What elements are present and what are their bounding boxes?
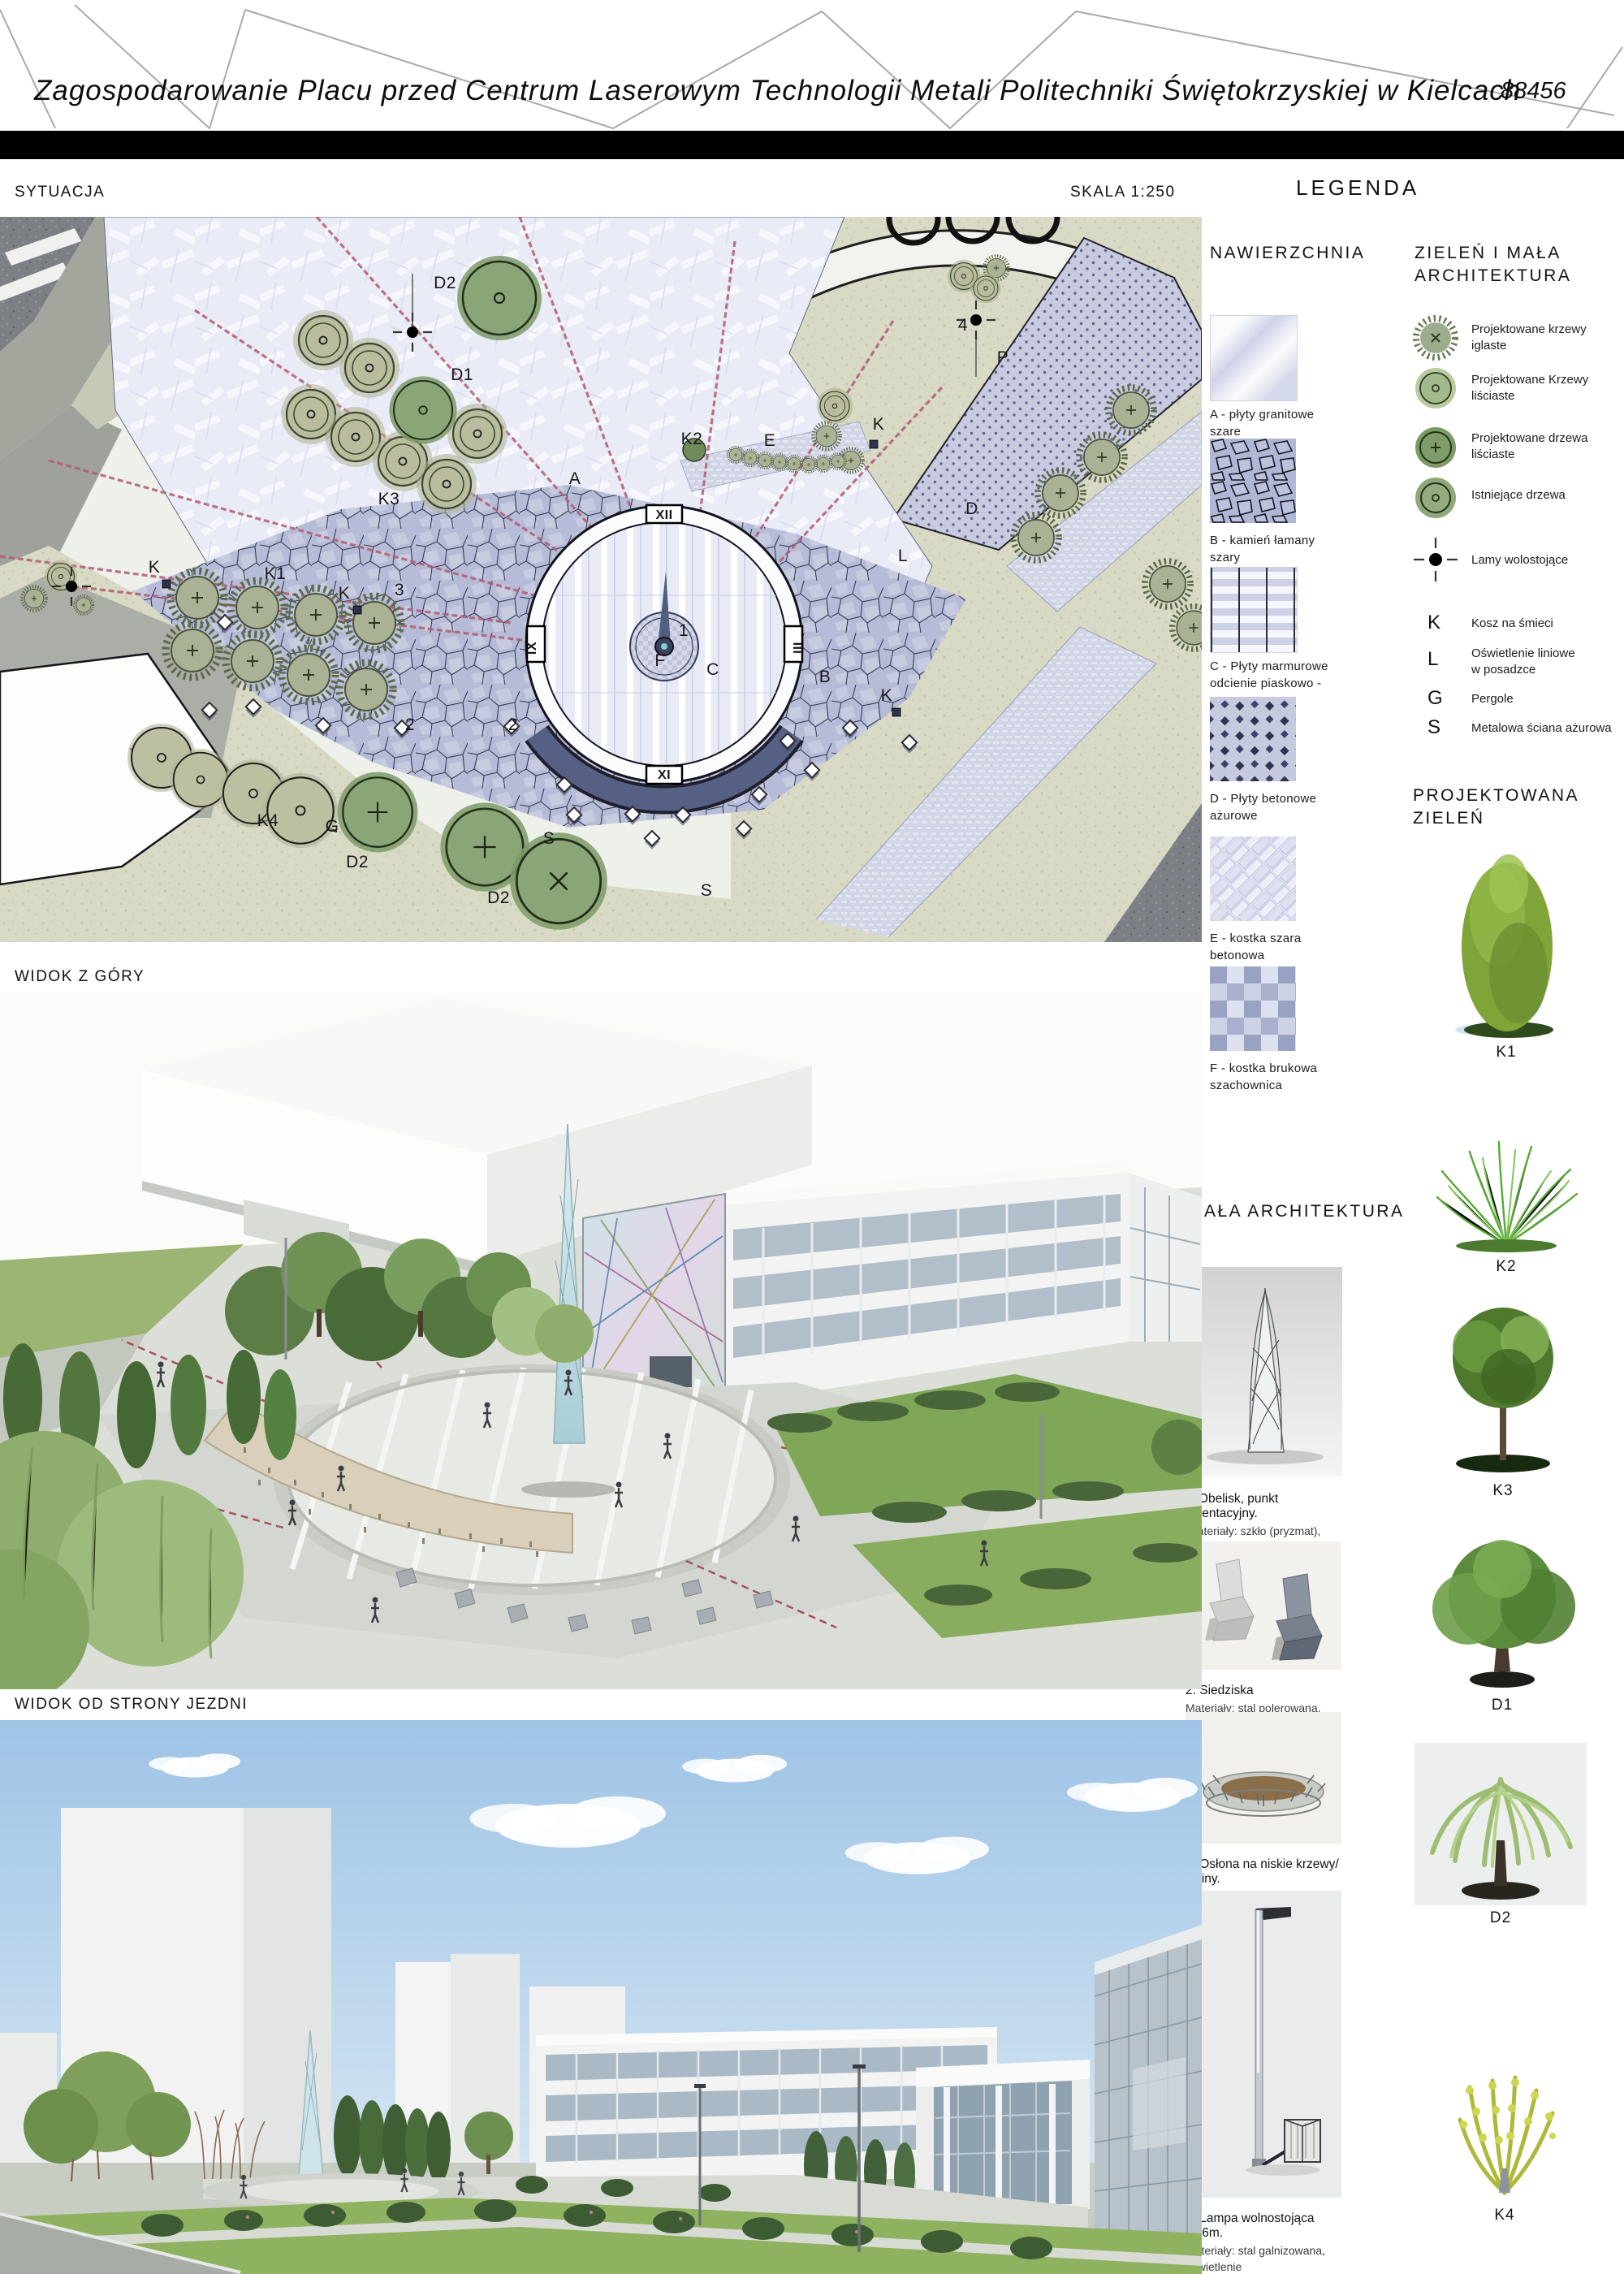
symbol-label: Lamy wolostojące — [1471, 552, 1568, 568]
plan-label-D2: D2 — [434, 274, 456, 292]
plant-photo-K4: K4 — [1437, 2063, 1572, 2224]
plant-code: K4 — [1437, 2207, 1572, 2224]
plan-label-G: G — [326, 817, 339, 836]
plan-label-K2: K2 — [681, 430, 703, 448]
mala-architektura-heading: MAŁA ARCHITEKTURA — [1188, 1200, 1405, 1223]
legend-letter-L: L — [1427, 648, 1438, 671]
legend-letter-G-label: Pergole — [1471, 691, 1514, 707]
view-top-label: WIDOK Z GÓRY — [15, 968, 145, 986]
section-label-sytuacja: SYTUACJA — [15, 184, 105, 201]
symbol-label: Istniejące drzewa — [1471, 487, 1566, 504]
plant-photo-K2: K2 — [1431, 1122, 1582, 1276]
plan-label-K1: K1 — [265, 564, 287, 583]
plant-code: D2 — [1415, 1909, 1587, 1927]
swatch-A: A - płyty granitowe szare — [1210, 315, 1314, 440]
swatch-E: E - kostka szara betonowa — [1210, 837, 1301, 964]
plan-label-B: B — [819, 668, 831, 686]
furniture-item-lamp: 4. Lampa wolnostojąca H=6m. Materiały: s… — [1186, 1891, 1341, 2274]
furniture-item-obelisk: 1.Obelisk, punkt orientacyjny. Materiały… — [1188, 1267, 1342, 1572]
plant-photo-D2: D2 — [1415, 1743, 1587, 1927]
plan-label-K: K — [339, 584, 351, 603]
legend-letter-S-label: Metalowa ściana ażurowa — [1471, 720, 1612, 737]
plan-label-D: D — [965, 499, 978, 518]
swatch-F-caption: F - kostka brukowa szachownica — [1210, 1060, 1317, 1094]
render-street-view — [0, 1720, 1202, 2274]
plan-label-S: S — [701, 881, 713, 900]
swatch-B-caption: B - kamień łamany szary — [1210, 532, 1315, 566]
swatch-E-caption: E - kostka szara betonowa — [1210, 930, 1301, 964]
existing-tree-symbol — [1410, 473, 1461, 523]
plan-label-K: K — [881, 686, 893, 705]
plan-label-3: 3 — [395, 581, 404, 599]
swatch-A-caption: A - płyty granitowe szare — [1210, 406, 1314, 440]
item-title: 4. Lampa wolnostojąca H=6m. — [1186, 2211, 1341, 2241]
plan-label-K: K — [149, 558, 161, 577]
plan-label-XII: XII — [655, 508, 672, 522]
swatch-D-caption: D - Płyty betonowe ażurowe — [1210, 790, 1316, 824]
leafy-shrub-symbol — [1410, 363, 1461, 413]
plan-label-IX: IX — [525, 642, 539, 655]
item-title: 3. Osłona na niskie krzewy/ byliny. — [1186, 1857, 1341, 1887]
plant-photo-K1: K1 — [1437, 827, 1575, 1061]
nawierzchnia-heading: NAWIERZCHNIA — [1210, 242, 1365, 265]
presentation-board: Zagospodarowanie Placu przed Centrum Las… — [0, 0, 1624, 2274]
swatch-B: B - kamień łamany szary — [1210, 439, 1315, 566]
swatch-D: D - Płyty betonowe ażurowe — [1210, 697, 1316, 824]
zielen-heading: ZIELEŃ I MAŁA ARCHITEKTURA — [1415, 242, 1571, 288]
symbol-label: Projektowane krzewy iglaste — [1471, 322, 1587, 355]
plan-label-2: 2 — [405, 715, 415, 734]
header-divider-bar — [0, 131, 1624, 159]
plan-label-1: 1 — [679, 621, 689, 640]
item-title: 2. Siedziska — [1186, 1684, 1341, 1698]
legend-letter-K: K — [1427, 612, 1440, 634]
legend-letter-L-label: Oświetlenie liniowe w posadzce — [1471, 646, 1575, 679]
plan-label-C: C — [706, 660, 719, 679]
item-title: 1.Obelisk, punkt orientacyjny. — [1188, 1492, 1342, 1521]
legend-letter-G: G — [1427, 687, 1443, 710]
item-materials: Materiały: stal galnizowana, oświetlenie… — [1186, 2242, 1341, 2274]
plan-label-K4: K4 — [257, 811, 279, 830]
zigzag-decoration — [0, 0, 1624, 130]
plan-label-2: 2 — [508, 715, 518, 734]
projektowana-zielen-heading: PROJEKTOWANA ZIELEŃ — [1413, 785, 1624, 831]
plan-label-4: 4 — [958, 316, 968, 335]
render-top-view — [0, 992, 1202, 1689]
plant-photo-K3: K3 — [1427, 1283, 1579, 1500]
plan-label-D2: D2 — [346, 853, 369, 871]
plan-label-D2: D2 — [487, 888, 510, 907]
plan-label-XI: XI — [658, 768, 671, 782]
leafy-tree-symbol — [1410, 422, 1461, 473]
plant-code: K1 — [1437, 1044, 1575, 1061]
legend-letter-S: S — [1427, 716, 1440, 739]
plan-label-S: S — [543, 829, 555, 848]
lamp-symbol — [1410, 534, 1461, 585]
plan-scale: SKALA 1:250 — [1070, 184, 1176, 201]
plan-label-L: L — [898, 547, 908, 565]
site-plan: D2D1K3AK2EKK1K3PD4KL1FCBK22K4GSSD2D2XIII… — [0, 217, 1202, 942]
swatch-C: C - Płyty marmurowe odcienie piaskowo - … — [1210, 567, 1328, 709]
plant-code: K2 — [1431, 1258, 1582, 1276]
plant-photo-D1: D1 — [1415, 1532, 1590, 1714]
plan-label-A: A — [569, 469, 581, 488]
plan-label-P: P — [997, 348, 1009, 367]
plan-label-E: E — [764, 431, 776, 450]
symbol-label: Projektowane Krzewy liściaste — [1471, 372, 1588, 405]
conifer-shrub-symbol — [1410, 313, 1461, 363]
plan-label-III: III — [790, 642, 804, 655]
plan-label-K: K — [873, 415, 885, 434]
board-number: 88456 — [1501, 78, 1566, 105]
symbol-label: Projektowane drzewa liściaste — [1471, 430, 1587, 464]
plan-label-F: F — [654, 651, 665, 670]
furniture-item-planter-guard: 3. Osłona na niskie krzewy/ byliny. Mate… — [1186, 1712, 1341, 1922]
furniture-item-seats: 2. Siedziska Materiały: stal polerowana. — [1186, 1541, 1341, 1716]
plan-label-K3: K3 — [378, 490, 400, 508]
plan-label-D1: D1 — [451, 365, 473, 384]
sundial-plaza — [526, 505, 802, 784]
poster-title: Zagospodarowanie Placu przed Centrum Las… — [34, 75, 1521, 107]
plant-code: D1 — [1415, 1697, 1590, 1714]
legend-title: LEGENDA — [1296, 175, 1419, 201]
plant-code: K3 — [1427, 1482, 1579, 1500]
view-street-label: WIDOK OD STRONY JEZDNI — [15, 1696, 248, 1714]
swatch-F: F - kostka brukowa szachownica — [1210, 966, 1317, 1094]
legend-letter-K-label: Kosz na śmieci — [1471, 616, 1553, 632]
